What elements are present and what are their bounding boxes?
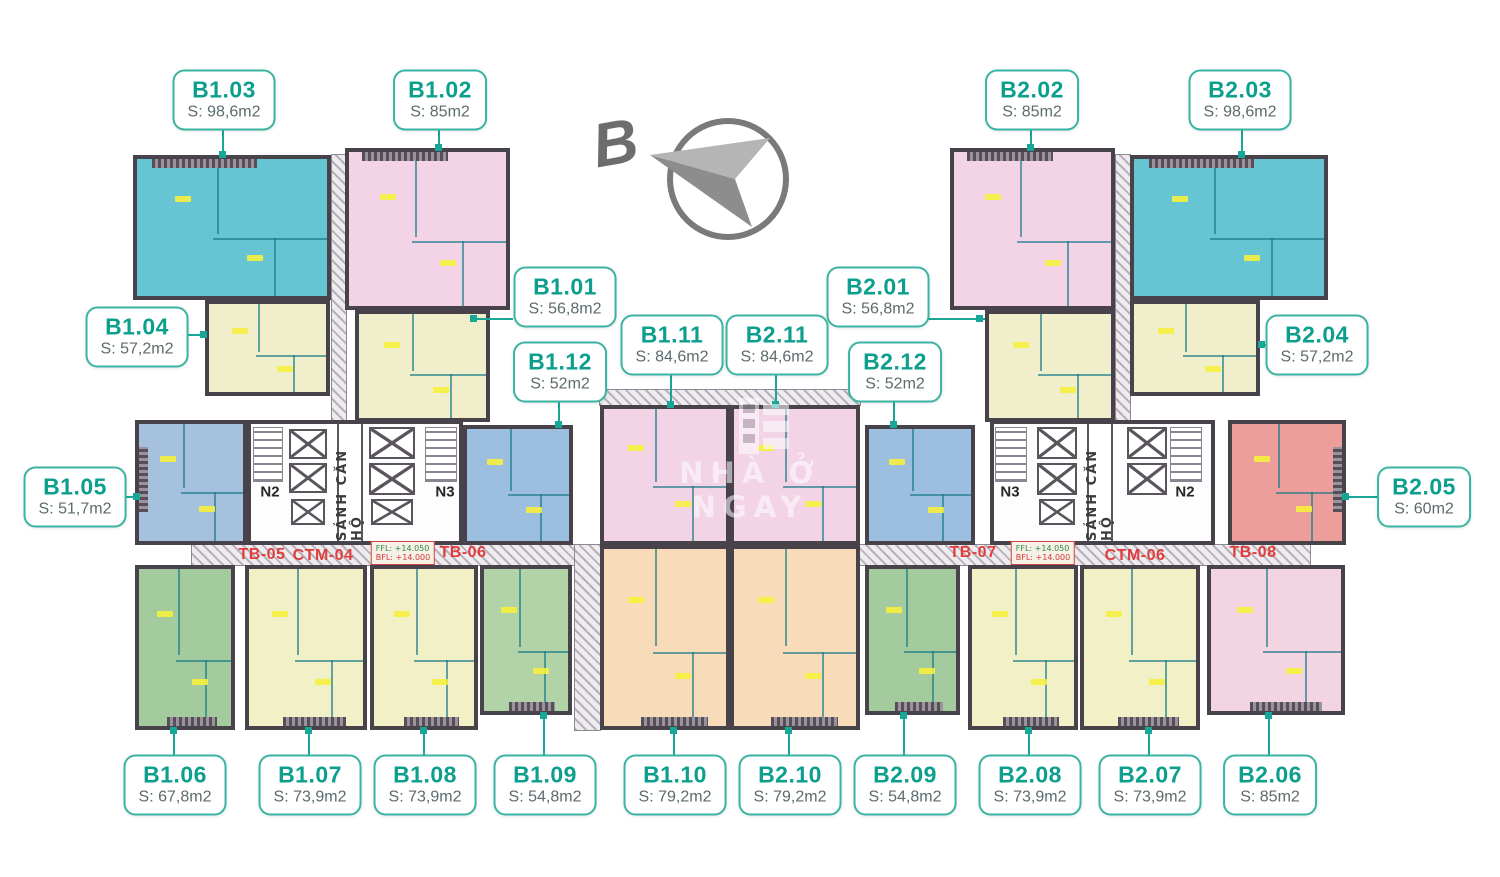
unit-label-B1.06[interactable]: B1.06S: 67,8m2 [124,755,227,816]
room-divider [1210,238,1324,240]
level-annotation-box: FFL: +14.050BFL: +14.000 [1011,541,1075,565]
room-divider [519,569,521,647]
room-label-chip [758,597,774,603]
label-connector-dot [785,727,792,734]
room-label-chip [1031,679,1047,685]
balcony [1003,717,1059,726]
unit-label-B1.04[interactable]: B1.04S: 57,2m2 [86,307,189,368]
unit-B1.09[interactable] [480,565,572,715]
room-label-chip [272,611,288,617]
unit-area: S: 54,8m2 [869,788,942,807]
lobby-corridor: SẢNH CĂN HỘ [337,424,363,541]
label-connector-dot [1238,151,1245,158]
label-connector-line [543,715,545,757]
room-divider [1015,569,1017,655]
room-label-chip [394,611,410,617]
room-label-chip [1254,456,1270,462]
room-divider [450,374,452,418]
elevator-icon [1039,499,1075,525]
level-annotation-box: FFL: +14.050BFL: +14.000 [371,541,435,565]
label-connector-line [1028,730,1030,757]
label-connector-dot [900,712,907,719]
bfl-value: BFL: +14.000 [1016,553,1070,562]
unit-B1.12[interactable] [463,425,573,545]
unit-label-B2.12[interactable]: B2.12S: 52m2 [848,342,942,403]
label-connector-dot [540,712,547,719]
label-connector-line [173,730,175,757]
unit-code: B2.12 [863,349,927,375]
unit-area: S: 57,2m2 [101,340,174,359]
room-divider [412,241,506,243]
label-connector-dot [133,493,140,500]
label-connector-dot [1258,341,1265,348]
label-connector-dot [200,331,207,338]
unit-B1.07[interactable] [245,565,367,730]
unit-area: S: 54,8m2 [509,788,582,807]
unit-code: B1.10 [639,762,712,788]
room-divider [412,314,414,371]
unit-B2.06[interactable] [1207,565,1345,715]
room-label-chip [1244,255,1260,261]
unit-code: B2.03 [1204,77,1277,103]
room-label-chip [432,679,448,685]
label-connector-line [903,715,905,757]
room-label-chip [501,607,517,613]
room-label-chip [175,196,191,202]
room-divider [655,549,657,646]
balcony [404,717,459,726]
label-connector-dot [1145,727,1152,734]
balcony [362,152,448,161]
balcony [1149,159,1254,168]
label-connector-line [308,730,310,757]
label-connector-line [1268,715,1270,757]
balcony [895,702,943,711]
unit-code: B2.07 [1114,762,1187,788]
room-label-chip [928,507,944,513]
unit-label-B2.05[interactable]: B2.05S: 60m2 [1377,467,1471,528]
room-label-chip [1296,506,1312,512]
corridor-label: TB-06 [440,544,487,562]
unit-label-B1.08[interactable]: B1.08S: 73,9m2 [374,755,477,816]
balcony [283,717,346,726]
unit-area: S: 73,9m2 [389,788,462,807]
room-divider [213,238,327,240]
label-connector-dot [1342,493,1349,500]
stair-core-label: N3 [435,484,454,501]
room-divider [1185,304,1187,352]
unit-area: S: 52m2 [863,375,927,394]
room-label-chip [1060,387,1076,393]
unit-code: B1.04 [101,314,174,340]
room-label-chip [526,507,542,513]
elevator-icon [1037,427,1077,459]
unit-B2.09[interactable] [865,565,960,715]
unit-B1.03[interactable] [133,155,331,300]
room-label-chip [628,445,644,451]
unit-area: S: 79,2m2 [754,788,827,807]
room-label-chip [1205,366,1221,372]
room-divider [1013,660,1074,662]
unit-label-B2.04[interactable]: B2.04S: 57,2m2 [1266,315,1369,376]
room-divider [508,494,569,496]
unit-B2.04[interactable] [1130,300,1260,396]
room-label-chip [675,673,691,679]
unit-label-B1.07[interactable]: B1.07S: 73,9m2 [259,755,362,816]
compass: B [593,100,813,255]
room-label-chip [1013,342,1029,348]
stairs-icon [253,427,283,482]
unit-B1.10[interactable] [600,545,730,730]
unit-area: S: 57,2m2 [1281,348,1354,367]
unit-area: S: 85m2 [1000,103,1064,122]
room-divider [785,409,787,482]
elevator-icon [1127,427,1167,459]
balcony [152,159,257,168]
label-connector-dot [890,421,897,428]
label-connector-dot [219,151,226,158]
room-divider [910,494,971,496]
room-label-chip [886,607,902,613]
room-divider [785,549,787,646]
label-connector-dot [170,727,177,734]
room-divider [183,424,185,488]
corridor-label: TB-07 [950,544,997,562]
room-divider [1222,355,1224,392]
ffl-value: FFL: +14.050 [1016,544,1070,553]
balcony [1333,447,1342,511]
unit-B2.08[interactable] [968,565,1078,730]
unit-area: S: 79,2m2 [639,788,712,807]
ffl-value: FFL: +14.050 [376,544,430,553]
unit-code: B1.06 [139,762,212,788]
balcony [771,717,838,726]
unit-area: S: 67,8m2 [139,788,212,807]
room-label-chip [384,342,400,348]
room-divider [942,494,944,541]
corridor-label: TB-05 [239,546,286,564]
lobby-label: SẢNH CĂN HỘ [335,424,365,541]
unit-label-B2.01[interactable]: B2.01S: 56,8m2 [827,267,930,328]
room-label-chip [758,445,774,451]
balcony [1118,717,1180,726]
room-divider [217,159,219,234]
floor-plan-canvas: SẢNH CĂN HỘN2N3SẢNH CĂN HỘN3N2 B1.01S: 5… [0,0,1500,877]
room-divider [1129,660,1196,662]
unit-label-B2.06[interactable]: B2.06S: 85m2 [1223,755,1317,816]
room-label-chip [1045,260,1061,266]
label-connector-line [423,730,425,757]
room-divider [178,569,180,655]
room-divider [1038,374,1111,376]
room-divider [1077,374,1079,418]
unit-code: B1.09 [509,762,582,788]
unit-code: B2.05 [1392,474,1456,500]
room-label-chip [919,668,935,674]
label-connector-dot [1027,144,1034,151]
unit-label-B1.10[interactable]: B1.10S: 79,2m2 [624,755,727,816]
room-divider [1214,159,1216,234]
room-label-chip [157,611,173,617]
unit-B2.12[interactable] [865,425,975,545]
label-connector-line [1346,496,1378,498]
room-divider [518,651,568,653]
room-divider [1020,152,1022,237]
unit-area: S: 73,9m2 [1114,788,1187,807]
stair-core-label: N2 [1175,484,1194,501]
corridor-label: TB-08 [1230,544,1277,562]
room-divider [783,486,856,488]
unit-label-B2.10[interactable]: B2.10S: 79,2m2 [739,755,842,816]
elevator-icon [1037,463,1077,495]
unit-code: B2.02 [1000,77,1064,103]
elevator-icon [369,463,415,495]
room-label-chip [1149,679,1165,685]
room-label-chip [985,194,1001,200]
unit-code: B1.07 [274,762,347,788]
room-divider [415,152,417,237]
room-divider [1040,314,1042,371]
unit-B2.07[interactable] [1080,565,1200,730]
unit-code: B1.12 [528,349,592,375]
room-divider [414,660,474,662]
room-divider [1067,241,1069,306]
room-divider [822,652,824,726]
hatch-strip-center-top [600,390,860,405]
unit-area: S: 56,8m2 [842,300,915,319]
room-label-chip [380,194,396,200]
unit-B2.10[interactable] [730,545,860,730]
unit-code: B2.11 [741,322,814,348]
lobby-label: SẢNH CĂN HỘ [1085,424,1115,541]
room-label-chip [805,673,821,679]
label-connector-dot [670,727,677,734]
room-divider [297,569,299,655]
room-divider [274,238,276,296]
unit-label-B2.07[interactable]: B2.07S: 73,9m2 [1099,755,1202,816]
label-connector-line [673,730,675,757]
hatch-strip-right [1116,155,1130,420]
unit-B1.06[interactable] [135,565,235,730]
room-divider [295,660,363,662]
room-divider [692,486,694,541]
hatch-strip-bottom-center [575,545,600,730]
unit-label-B1.11[interactable]: B1.11S: 84,6m2 [621,315,724,376]
unit-code: B2.10 [754,762,827,788]
unit-B2.05[interactable] [1228,420,1346,545]
room-divider [258,304,260,352]
unit-code: B2.06 [1238,762,1302,788]
unit-area: S: 73,9m2 [274,788,347,807]
unit-label-B1.03[interactable]: B1.03S: 98,6m2 [173,70,276,131]
unit-B1.02[interactable] [345,148,510,310]
room-divider [653,486,726,488]
room-label-chip [487,459,503,465]
room-divider [181,492,243,494]
unit-code: B1.02 [408,77,472,103]
unit-code: B2.08 [994,762,1067,788]
room-divider [653,652,726,654]
label-connector-dot [435,144,442,151]
room-label-chip [277,366,293,372]
room-divider [1263,651,1341,653]
room-label-chip [992,611,1008,617]
label-connector-dot [420,727,427,734]
unit-code: B1.11 [636,322,709,348]
elevator-icon [369,427,415,459]
unit-B2.02[interactable] [950,148,1115,310]
room-divider [1183,355,1256,357]
room-label-chip [1286,668,1302,674]
unit-code: B2.04 [1281,322,1354,348]
unit-area: S: 84,6m2 [636,348,709,367]
unit-B2.01[interactable] [985,310,1115,422]
unit-label-B1.05[interactable]: B1.05S: 51,7m2 [24,467,127,528]
room-divider [176,660,231,662]
unit-B2.03[interactable] [1130,155,1328,300]
elevator-icon [1127,463,1167,495]
room-label-chip [160,456,176,462]
room-label-chip [1158,328,1174,334]
label-connector-line [788,730,790,757]
elevator-icon [289,463,327,493]
room-label-chip [315,679,331,685]
room-divider [214,492,216,541]
room-divider [540,494,542,541]
room-label-chip [440,260,456,266]
unit-label-B1.09[interactable]: B1.09S: 54,8m2 [494,755,597,816]
room-label-chip [675,501,691,507]
label-connector-dot [667,401,674,408]
room-label-chip [628,597,644,603]
room-divider [510,429,512,491]
room-label-chip [232,328,248,334]
unit-label-B2.08[interactable]: B2.08S: 73,9m2 [979,755,1082,816]
unit-label-B2.03[interactable]: B2.03S: 98,6m2 [1189,70,1292,131]
room-label-chip [1172,196,1188,202]
unit-area: S: 51,7m2 [39,500,112,519]
unit-area: S: 98,6m2 [188,103,261,122]
balcony [167,717,218,726]
lobby-corridor: SẢNH CĂN HỘ [1087,424,1113,541]
stairs-icon [1170,427,1202,482]
room-label-chip [247,255,263,261]
label-connector-dot [976,315,983,322]
unit-area: S: 85m2 [1238,788,1302,807]
unit-B1.08[interactable] [370,565,478,730]
room-divider [410,374,486,376]
balcony [509,702,555,711]
label-connector-dot [470,315,477,322]
unit-label-B1.02[interactable]: B1.02S: 85m2 [393,70,487,131]
room-label-chip [1106,611,1122,617]
unit-code: B1.08 [389,762,462,788]
label-connector-dot [555,421,562,428]
elevator-icon [371,499,413,525]
unit-code: B1.01 [529,274,602,300]
balcony [139,447,148,511]
unit-area: S: 98,6m2 [1204,103,1277,122]
label-connector-dot [772,401,779,408]
corridor-label: CTM-04 [293,547,354,565]
label-connector-dot [1025,727,1032,734]
room-divider [1278,424,1280,488]
unit-area: S: 52m2 [528,375,592,394]
unit-B1.11[interactable] [600,405,730,545]
unit-B1.05[interactable] [135,420,247,545]
unit-label-B2.09[interactable]: B2.09S: 54,8m2 [854,755,957,816]
label-connector-line [1148,730,1150,757]
room-label-chip [1237,607,1253,613]
unit-area: S: 73,9m2 [994,788,1067,807]
room-divider [256,355,326,357]
hatch-strip-left [332,155,346,420]
room-divider [1266,569,1268,647]
room-label-chip [192,679,208,685]
unit-area: S: 60m2 [1392,500,1456,519]
room-divider [293,355,295,392]
stair-core-label: N3 [1000,484,1019,501]
room-divider [1131,569,1133,655]
bfl-value: BFL: +14.000 [376,553,430,562]
unit-label-B1.12[interactable]: B1.12S: 52m2 [513,342,607,403]
room-divider [1311,492,1313,541]
balcony [1250,702,1322,711]
stairs-icon [995,427,1027,482]
unit-code: B2.01 [842,274,915,300]
room-divider [906,569,908,647]
room-divider [692,652,694,726]
room-divider [1017,241,1111,243]
room-divider [822,486,824,541]
room-label-chip [889,459,905,465]
room-divider [655,409,657,482]
unit-label-B2.02[interactable]: B2.02S: 85m2 [985,70,1079,131]
stairs-icon [425,427,457,482]
unit-B1.01[interactable] [355,310,490,422]
balcony [967,152,1053,161]
unit-area: S: 85m2 [408,103,472,122]
unit-area: S: 56,8m2 [529,300,602,319]
unit-code: B1.05 [39,474,112,500]
room-label-chip [433,387,449,393]
room-label-chip [199,506,215,512]
room-label-chip [533,668,549,674]
label-connector-dot [305,727,312,734]
unit-B1.04[interactable] [205,300,330,396]
room-divider [912,429,914,491]
room-divider [462,241,464,306]
unit-B2.11[interactable] [730,405,860,545]
room-label-chip [805,501,821,507]
balcony [641,717,708,726]
unit-label-B1.01[interactable]: B1.01S: 56,8m2 [514,267,617,328]
unit-code: B1.03 [188,77,261,103]
room-divider [416,569,418,655]
elevator-icon [291,499,325,525]
room-divider [904,651,956,653]
unit-code: B2.09 [869,762,942,788]
label-connector-dot [1265,712,1272,719]
unit-area: S: 84,6m2 [741,348,814,367]
room-divider [783,652,856,654]
room-divider [1271,238,1273,296]
unit-label-B2.11[interactable]: B2.11S: 84,6m2 [726,315,829,376]
elevator-icon [289,429,327,459]
stair-core-label: N2 [260,484,279,501]
corridor-label: CTM-06 [1105,547,1166,565]
